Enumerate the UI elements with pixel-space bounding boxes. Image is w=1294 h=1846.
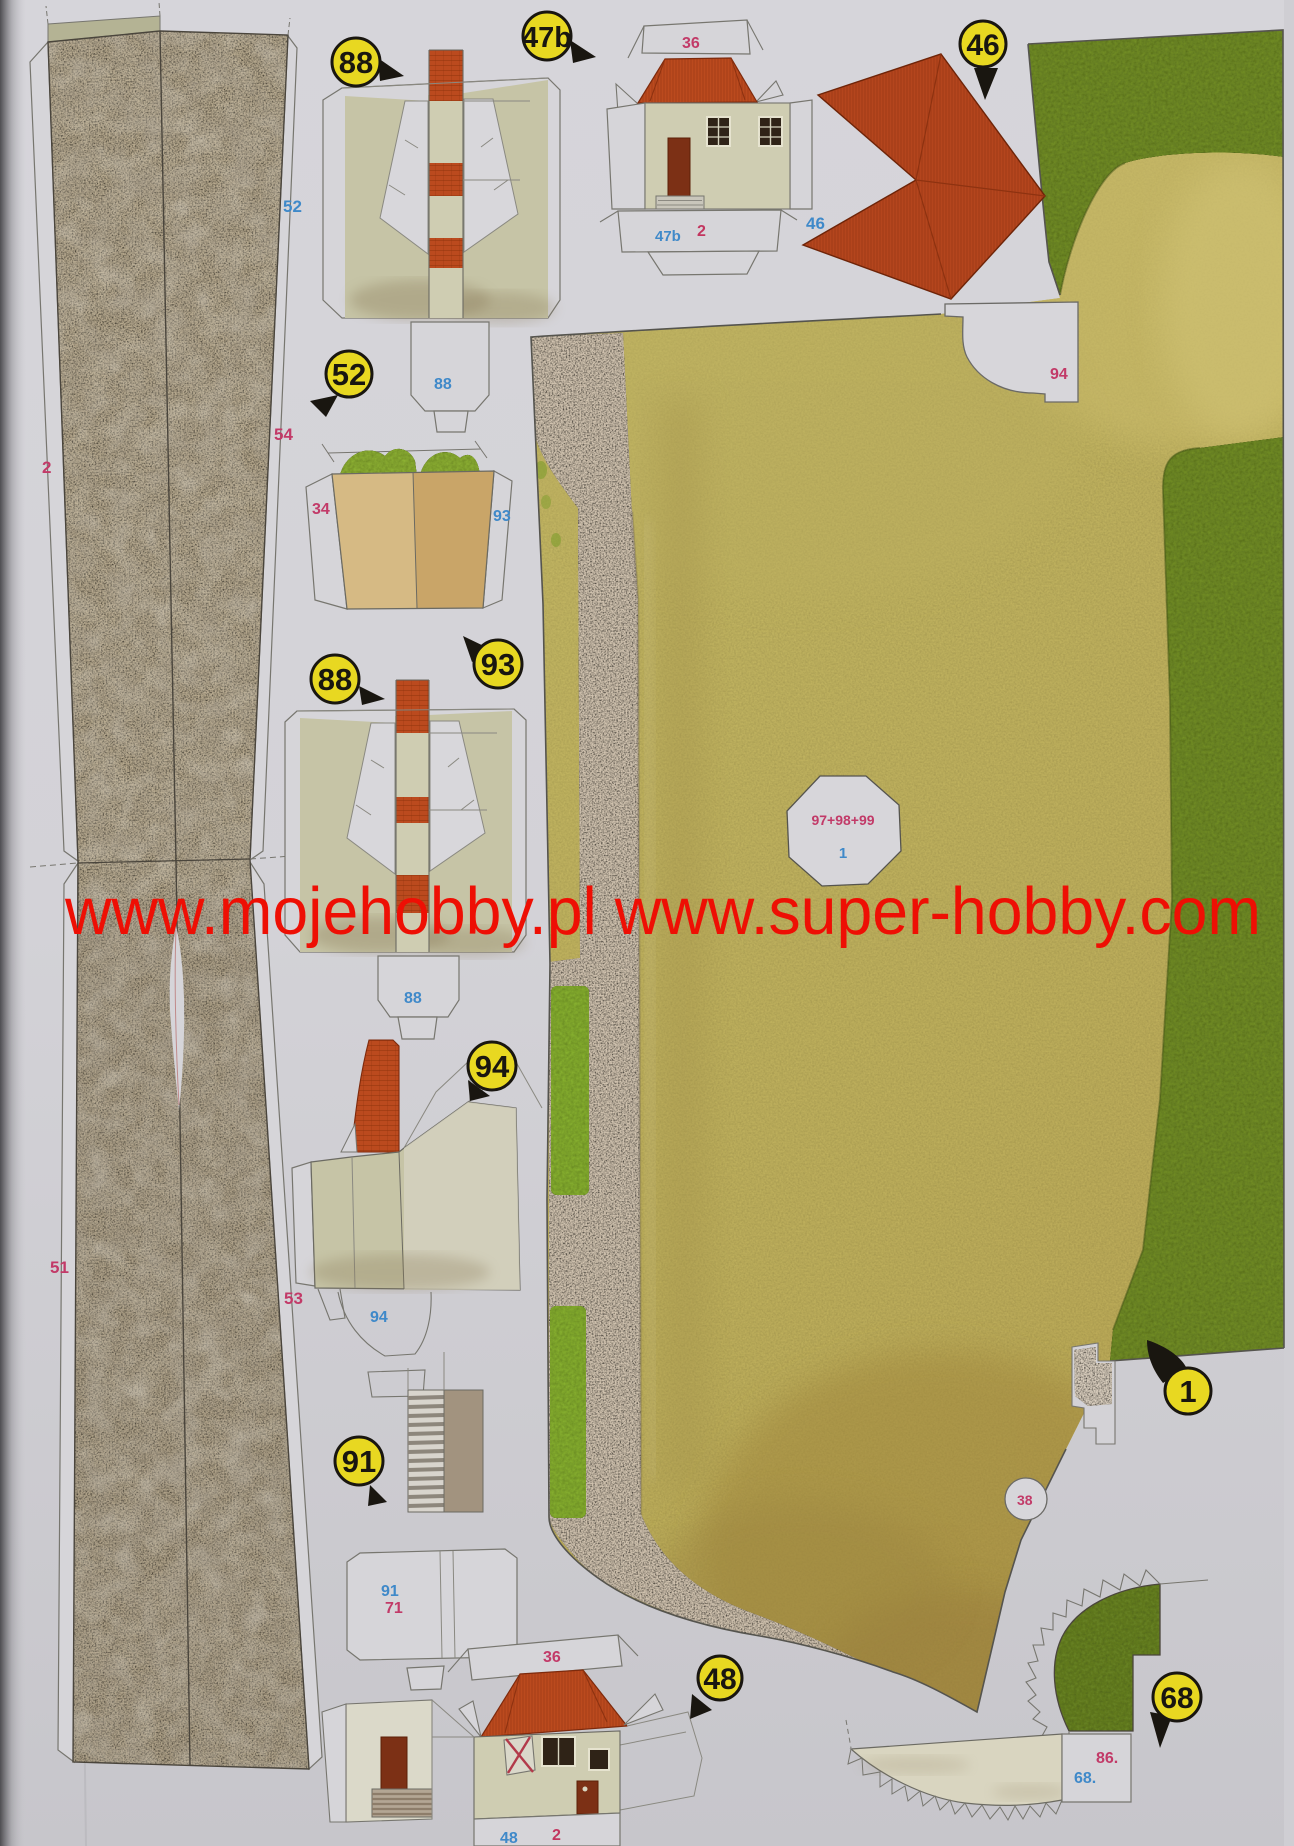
svg-text:48: 48 [703, 1663, 736, 1696]
svg-text:88: 88 [404, 990, 422, 1007]
svg-text:88: 88 [339, 45, 373, 80]
svg-text:34: 34 [312, 501, 330, 518]
svg-text:48: 48 [500, 1830, 518, 1846]
svg-text:91: 91 [342, 1444, 376, 1479]
svg-text:68: 68 [1160, 1682, 1193, 1715]
svg-text:94: 94 [370, 1309, 388, 1326]
svg-text:94: 94 [475, 1049, 510, 1084]
svg-text:46: 46 [806, 214, 825, 233]
svg-text:47b: 47b [655, 228, 681, 245]
svg-text:51: 51 [50, 1258, 69, 1277]
svg-text:52: 52 [283, 197, 302, 216]
svg-text:94: 94 [1050, 366, 1068, 383]
svg-text:93: 93 [481, 647, 515, 682]
svg-text:46: 46 [966, 29, 999, 62]
svg-text:71: 71 [385, 1600, 403, 1617]
svg-text:97+98+99: 97+98+99 [811, 812, 874, 828]
svg-text:88: 88 [434, 376, 452, 393]
svg-text:1: 1 [1179, 1374, 1196, 1409]
svg-text:38: 38 [1017, 1492, 1033, 1508]
svg-text:2: 2 [697, 223, 706, 240]
svg-text:52: 52 [332, 357, 366, 392]
svg-text:91: 91 [381, 1583, 399, 1600]
svg-text:2: 2 [42, 458, 51, 477]
svg-text:86.: 86. [1096, 1750, 1118, 1767]
svg-text:36: 36 [543, 1649, 561, 1666]
svg-text:68.: 68. [1074, 1770, 1096, 1787]
svg-text:36: 36 [682, 35, 700, 52]
svg-text:93: 93 [493, 508, 511, 525]
svg-text:54: 54 [274, 425, 293, 444]
svg-text:2: 2 [552, 1827, 561, 1844]
svg-text:47b: 47b [522, 22, 572, 54]
svg-text:88: 88 [318, 662, 352, 697]
svg-text:53: 53 [284, 1289, 303, 1308]
svg-text:1: 1 [839, 845, 847, 862]
svg-text:www.mojehobby.pl www.super-hob: www.mojehobby.pl www.super-hobby.com [64, 874, 1261, 949]
